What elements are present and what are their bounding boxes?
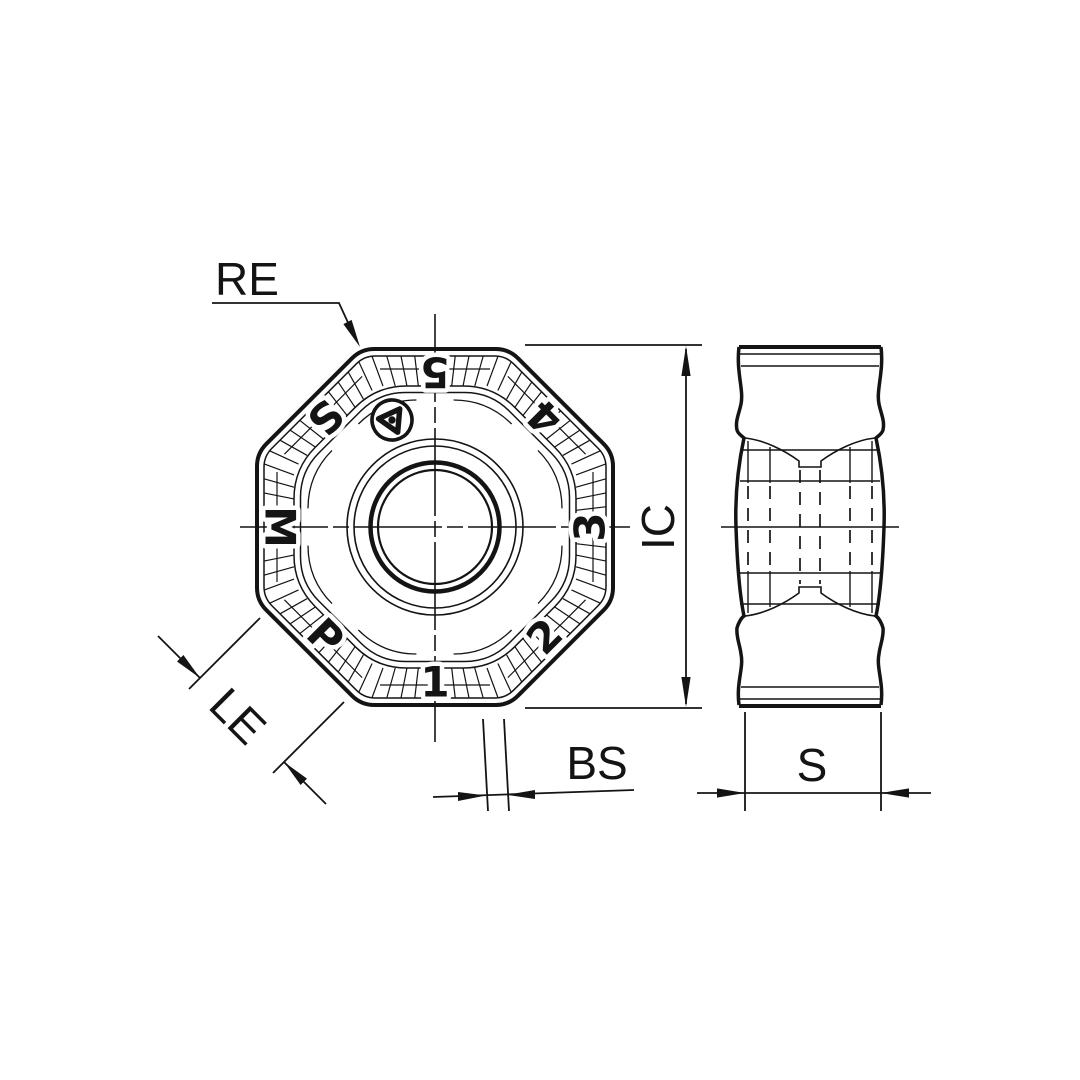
insert-mark-bottom: 1 — [420, 658, 449, 707]
insert-mark-top-left: S — [297, 389, 353, 445]
ic-arrowhead-bottom — [681, 677, 690, 707]
re-dimension — [212, 303, 360, 347]
bs-label: BS — [566, 737, 627, 789]
insert-mark-right: 3 — [566, 512, 615, 541]
bs-extension-line-right — [504, 719, 509, 811]
insert-technical-drawing: 54321PMS — [0, 0, 1080, 1080]
insert-mark-left: M — [256, 506, 305, 548]
side-serration-top-boundary — [745, 438, 875, 467]
side-left-outline — [736, 347, 744, 705]
side-right-outline — [876, 347, 884, 705]
s-label: S — [797, 739, 828, 791]
insert-mark-top-right: 4 — [517, 390, 572, 445]
re-leader-line — [212, 303, 356, 340]
bs-extension-line-left — [483, 719, 488, 811]
side-view-insert-profile — [721, 347, 899, 706]
re-label: RE — [215, 253, 279, 305]
s-arrowhead-left — [717, 788, 745, 797]
bs-arrowhead-left — [458, 792, 486, 801]
le-extension-line-lower — [273, 702, 344, 773]
le-arrowhead-lower — [284, 762, 307, 785]
insert-mark-bottom-left: P — [297, 608, 353, 664]
ic-label: IC — [632, 504, 684, 550]
insert-mark-top: 5 — [420, 348, 449, 397]
ic-arrowhead-top — [681, 346, 690, 376]
drawing-canvas: 54321PMS — [0, 0, 1080, 1080]
bs-arrowhead-right — [507, 790, 535, 799]
re-arrowhead — [343, 320, 360, 347]
s-arrowhead-right — [881, 788, 909, 797]
le-arrowhead-upper — [177, 655, 200, 678]
le-label: LE — [200, 678, 277, 755]
side-serration-bottom-boundary — [745, 587, 875, 616]
insert-mark-bottom-right: 2 — [517, 609, 572, 664]
